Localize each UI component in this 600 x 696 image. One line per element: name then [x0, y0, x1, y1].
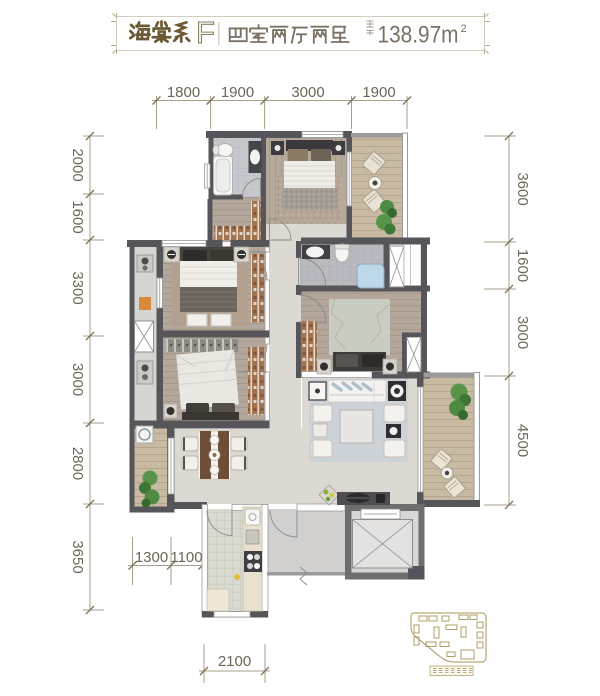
- svg-text:3000: 3000: [514, 316, 531, 349]
- svg-text:2800: 2800: [69, 447, 86, 480]
- svg-text:3000: 3000: [291, 84, 324, 101]
- svg-text:3650: 3650: [69, 540, 86, 573]
- svg-text:2000: 2000: [69, 148, 86, 181]
- svg-text:3300: 3300: [69, 271, 86, 304]
- svg-text:1300: 1300: [135, 549, 168, 566]
- svg-text:2: 2: [461, 23, 467, 35]
- svg-text:1900: 1900: [362, 84, 395, 101]
- svg-text:138.97m: 138.97m: [378, 22, 459, 49]
- svg-text:4500: 4500: [514, 424, 531, 457]
- svg-text:1800: 1800: [167, 84, 200, 101]
- svg-text:1600: 1600: [514, 249, 531, 282]
- svg-text:3000: 3000: [69, 363, 86, 396]
- svg-text:1600: 1600: [69, 200, 86, 233]
- svg-text:2100: 2100: [218, 653, 251, 670]
- svg-text:F: F: [196, 15, 215, 50]
- svg-text:1900: 1900: [221, 84, 254, 101]
- svg-text:1100: 1100: [170, 549, 202, 566]
- svg-text:3600: 3600: [514, 172, 531, 205]
